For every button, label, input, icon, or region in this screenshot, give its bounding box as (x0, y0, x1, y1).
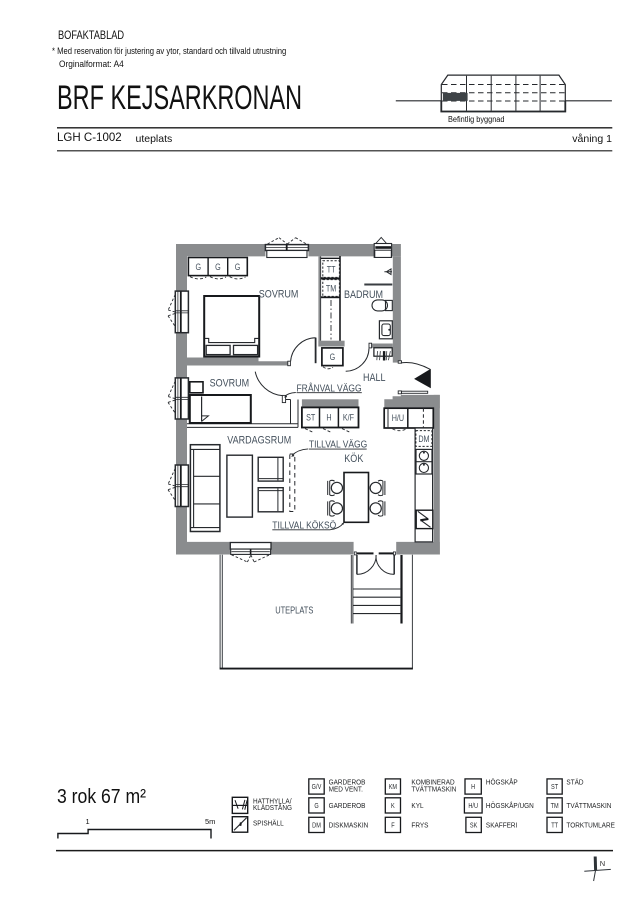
svg-text:G: G (196, 262, 202, 272)
svg-text:K/F: K/F (343, 413, 354, 423)
svg-text:F: F (391, 822, 395, 830)
svg-text:GARDEROB: GARDEROB (329, 803, 366, 810)
svg-text:FRÅNVAL VÄGG: FRÅNVAL VÄGG (297, 383, 362, 394)
svg-text:G: G (330, 352, 336, 362)
svg-text:H: H (471, 783, 475, 791)
svg-text:TVÄTTMASKIN: TVÄTTMASKIN (566, 802, 611, 810)
svg-text:SOVRUM: SOVRUM (210, 378, 250, 390)
svg-text:TT: TT (551, 822, 558, 830)
svg-text:TILLVAL KÖKSÖ: TILLVAL KÖKSÖ (272, 520, 336, 531)
svg-text:G: G (235, 262, 241, 272)
svg-text:SOVRUM: SOVRUM (259, 289, 299, 301)
svg-text:ST: ST (306, 413, 315, 423)
svg-text:TT: TT (327, 265, 336, 275)
svg-text:BADRUM: BADRUM (344, 289, 383, 301)
svg-text:UTEPLATS: UTEPLATS (275, 604, 313, 615)
svg-text:TVÄTTMASKIN: TVÄTTMASKIN (411, 785, 456, 793)
svg-text:DM: DM (418, 434, 429, 444)
svg-text:G: G (314, 802, 318, 810)
svg-text:N: N (600, 859, 605, 868)
svg-text:H: H (326, 413, 331, 423)
svg-text:SK: SK (470, 822, 478, 830)
svg-text:DISKMASKIN: DISKMASKIN (329, 822, 369, 829)
svg-text:H/U: H/U (392, 413, 404, 423)
svg-text:TORKTUMLARE: TORKTUMLARE (566, 822, 615, 829)
svg-text:G: G (215, 262, 221, 272)
svg-text:KM: KM (389, 783, 397, 791)
svg-text:STÄD: STÄD (566, 778, 583, 786)
svg-text:TILLVAL VÄGG: TILLVAL VÄGG (309, 439, 367, 450)
svg-text:VARDAGSRUM: VARDAGSRUM (227, 435, 291, 447)
svg-text:SKAFFERI: SKAFFERI (486, 822, 518, 829)
svg-text:H/U: H/U (468, 802, 478, 810)
svg-text:KYL: KYL (411, 803, 423, 810)
svg-text:TM: TM (551, 802, 559, 810)
svg-text:HÖGSKÅP: HÖGSKÅP (486, 777, 518, 786)
svg-text:FRYS: FRYS (411, 822, 429, 829)
svg-text:HÖGSKÅP/UGN: HÖGSKÅP/UGN (486, 801, 534, 810)
svg-text:KLÄDSTÅNG: KLÄDSTÅNG (253, 803, 292, 812)
svg-text:HALL: HALL (363, 372, 386, 384)
svg-text:DM: DM (312, 822, 321, 830)
svg-text:ST: ST (551, 783, 558, 791)
svg-text:SPISHÄLL: SPISHÄLL (253, 819, 284, 827)
svg-text:TM: TM (326, 284, 337, 294)
svg-text:MED VENT.: MED VENT. (329, 786, 363, 793)
svg-text:G/V: G/V (312, 783, 322, 791)
svg-text:KÖK: KÖK (344, 452, 363, 465)
